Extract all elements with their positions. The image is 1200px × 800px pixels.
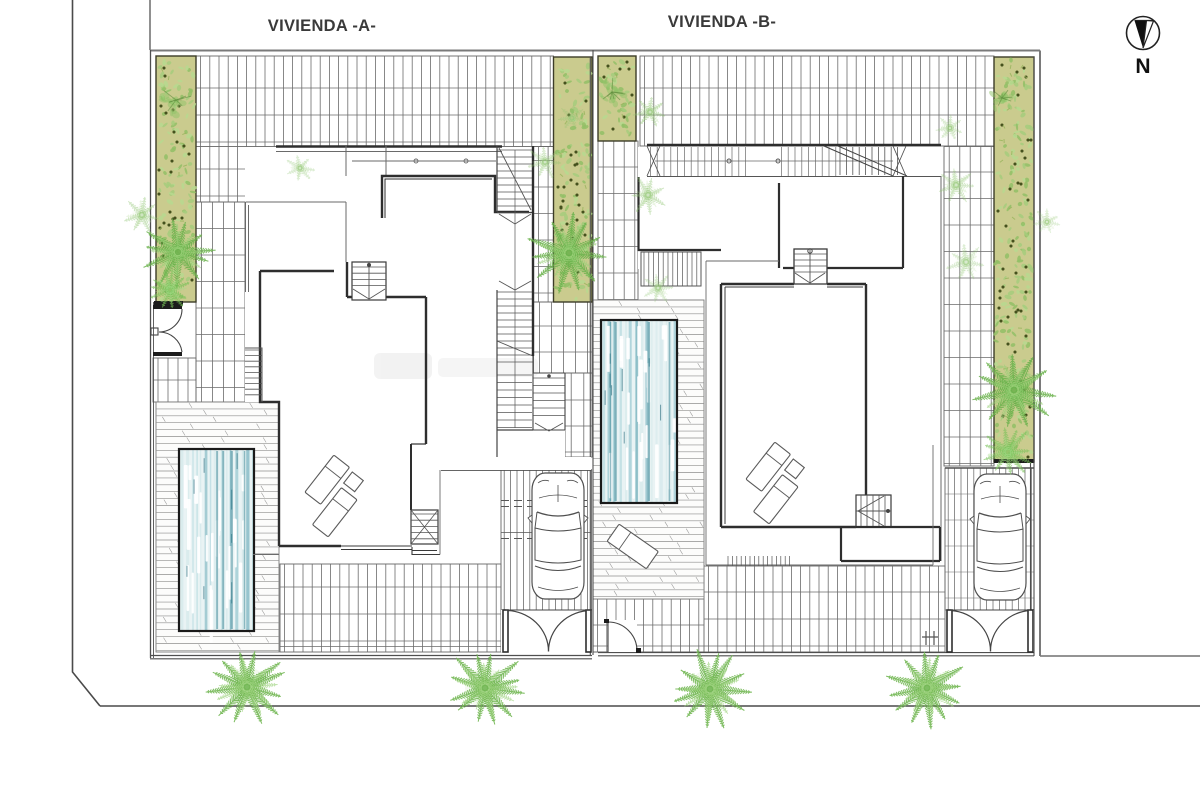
svg-text:N: N (1135, 55, 1150, 78)
svg-text:VIVIENDA -B-: VIVIENDA -B- (668, 13, 776, 31)
svg-text:VIVIENDA -A-: VIVIENDA -A- (268, 17, 376, 35)
